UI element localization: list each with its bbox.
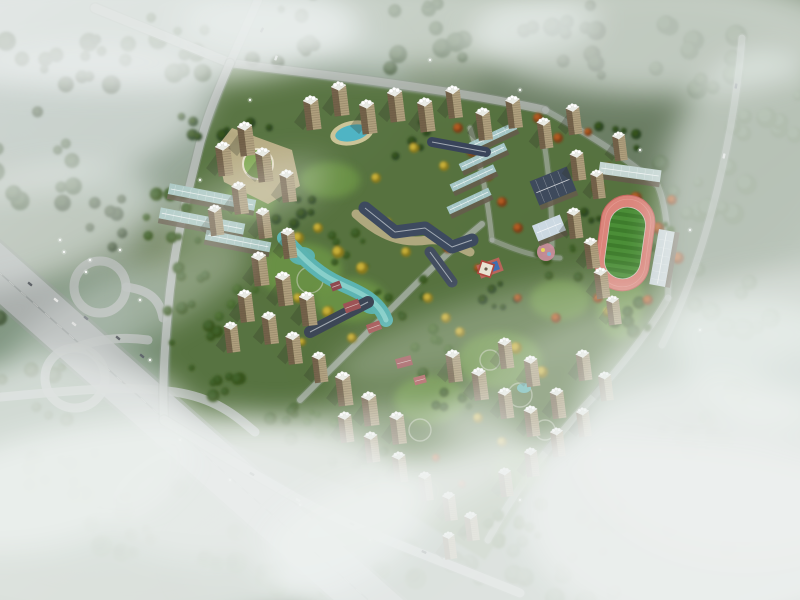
aerial-rendering xyxy=(0,0,800,600)
scene-svg xyxy=(0,0,800,600)
